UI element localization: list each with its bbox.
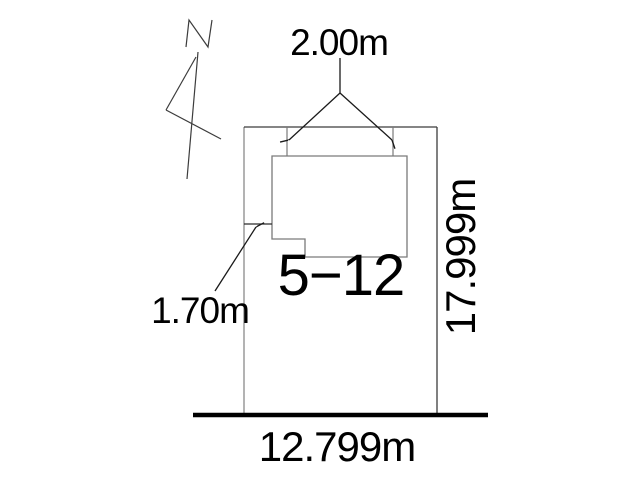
dimension-1-70m-leader: [215, 227, 256, 291]
compass-arrow-base: [166, 110, 221, 139]
dimension-label-side-setback: 1.70m: [151, 292, 249, 329]
dimension-label-frontage: 12.799m: [259, 426, 415, 468]
dimension-2m-branch-right: [340, 93, 392, 140]
north-arrow-icon: [166, 20, 221, 179]
site-plan: 2.00m 5−12 1.70m 12.799m 17.999m: [0, 0, 640, 480]
building-outline: [272, 156, 407, 257]
lot-number-label: 5−12: [278, 247, 405, 305]
dimension-2m-arrows: [289, 58, 392, 140]
north-letter-n: [186, 20, 212, 47]
dimension-2m-branch-left: [289, 93, 340, 140]
dimension-label-depth: 17.999m: [440, 179, 482, 335]
dimension-label-top-width: 2.00m: [290, 24, 388, 61]
site-plan-drawing: [0, 0, 640, 480]
setback-extension-lines: [287, 127, 393, 156]
compass-arrow-left-side: [166, 57, 196, 110]
